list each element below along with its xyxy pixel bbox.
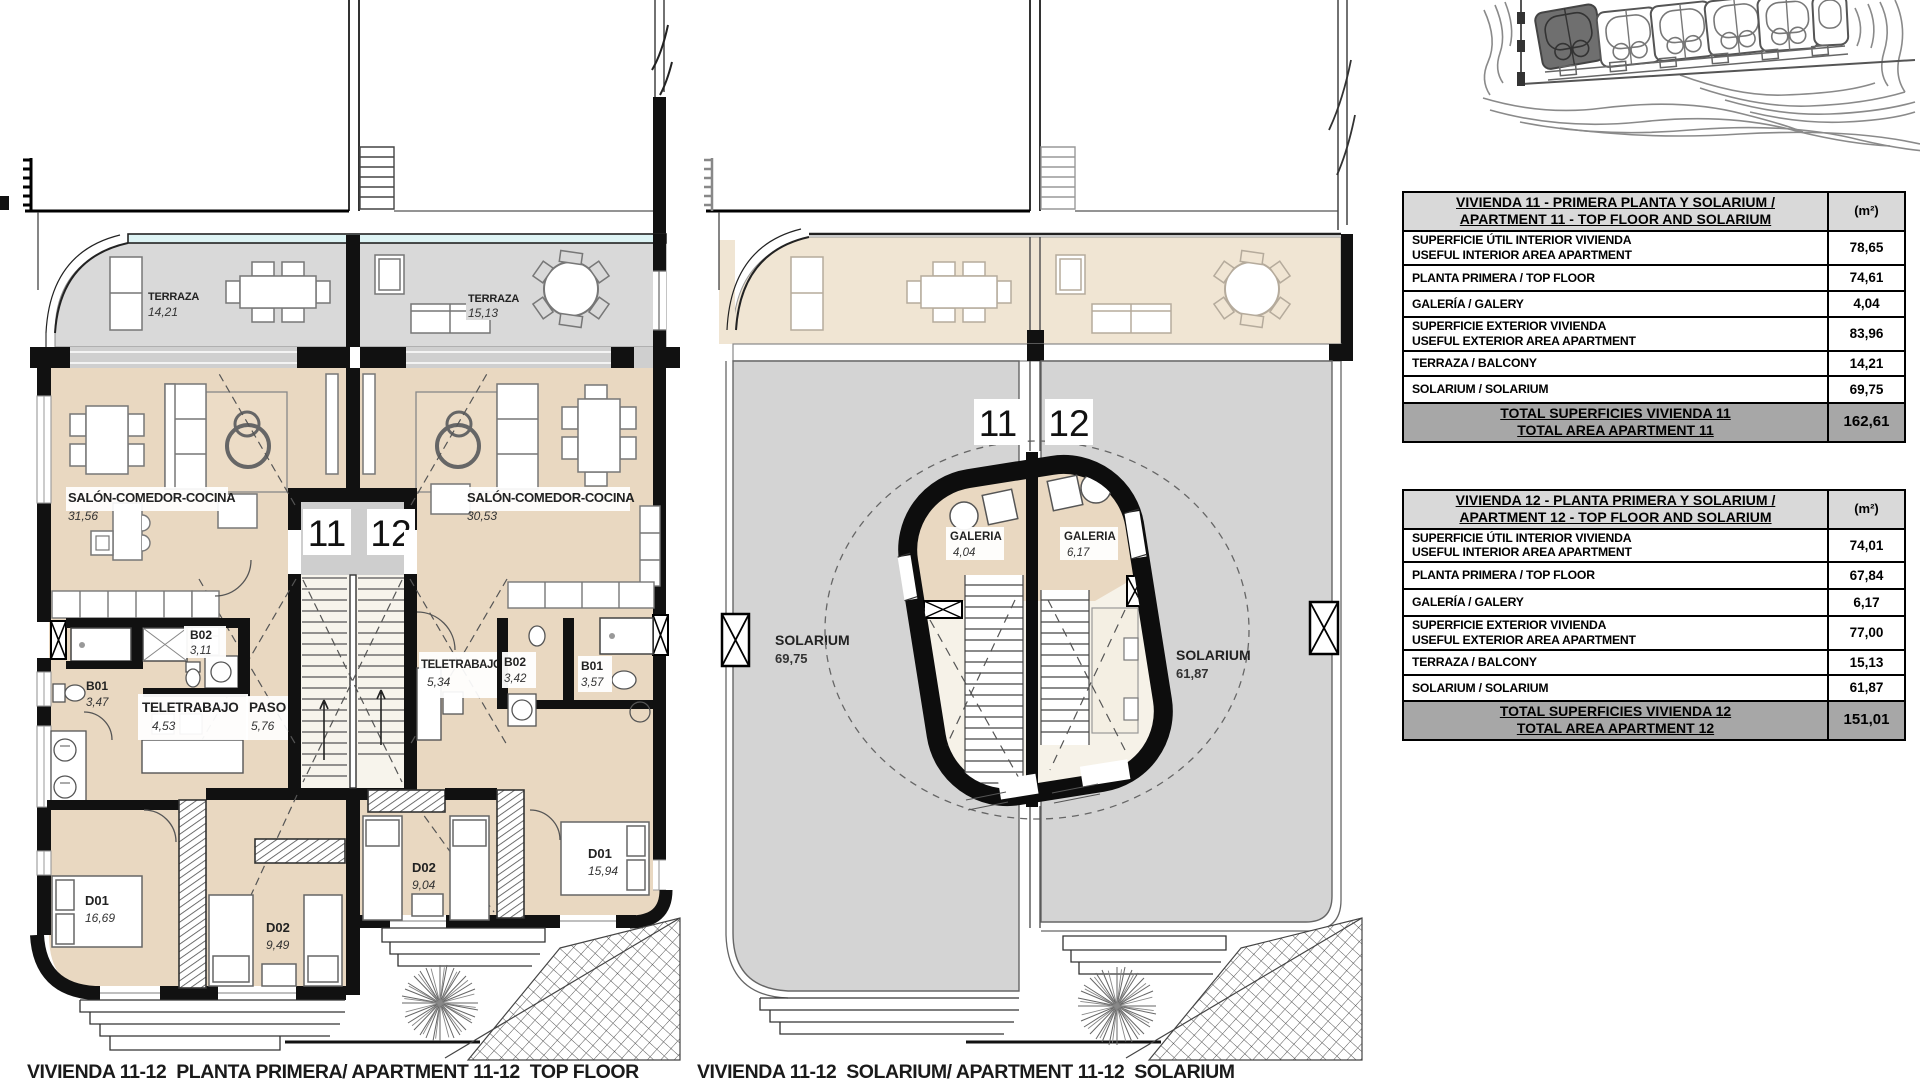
svg-text:9,04: 9,04 <box>412 878 436 892</box>
svg-text:B01: B01 <box>581 659 603 673</box>
svg-text:5,34: 5,34 <box>427 675 451 689</box>
svg-text:6,17: 6,17 <box>1067 547 1090 559</box>
svg-text:3,11: 3,11 <box>190 645 212 657</box>
svg-text:B02: B02 <box>190 628 212 642</box>
svg-text:TERRAZA: TERRAZA <box>148 291 199 303</box>
svg-text:TELETRABAJO: TELETRABAJO <box>421 659 502 671</box>
svg-text:GALERIA: GALERIA <box>1064 531 1116 543</box>
svg-text:B02: B02 <box>504 655 526 669</box>
svg-text:61,87: 61,87 <box>1176 666 1209 681</box>
svg-text:D02: D02 <box>266 920 290 935</box>
svg-text:31,56: 31,56 <box>68 509 98 523</box>
svg-text:15,13: 15,13 <box>468 306 498 320</box>
svg-text:3,42: 3,42 <box>504 673 527 685</box>
svg-text:PASO: PASO <box>249 700 286 715</box>
svg-text:GALERIA: GALERIA <box>950 531 1002 543</box>
svg-text:9,49: 9,49 <box>266 938 290 952</box>
svg-text:D01: D01 <box>588 846 612 861</box>
svg-text:SOLARIUM: SOLARIUM <box>775 632 850 648</box>
svg-text:3,57: 3,57 <box>581 677 604 689</box>
svg-text:30,53: 30,53 <box>467 509 497 523</box>
svg-text:11: 11 <box>308 513 346 554</box>
svg-text:12: 12 <box>1048 403 1089 444</box>
svg-text:69,75: 69,75 <box>775 651 808 666</box>
svg-text:D01: D01 <box>85 893 109 908</box>
svg-text:B01: B01 <box>86 679 108 693</box>
svg-text:SALÓN-COMEDOR-COCINA: SALÓN-COMEDOR-COCINA <box>68 490 236 505</box>
svg-text:5,76: 5,76 <box>251 719 275 733</box>
svg-text:4,04: 4,04 <box>953 547 975 559</box>
svg-text:11: 11 <box>979 403 1017 444</box>
svg-text:D02: D02 <box>412 860 436 875</box>
svg-text:SALÓN-COMEDOR-COCINA: SALÓN-COMEDOR-COCINA <box>467 490 635 505</box>
svg-text:3,47: 3,47 <box>86 697 109 709</box>
svg-text:15,94: 15,94 <box>588 864 618 878</box>
svg-text:TERRAZA: TERRAZA <box>468 293 519 305</box>
svg-text:4,53: 4,53 <box>152 719 176 733</box>
svg-text:SOLARIUM: SOLARIUM <box>1176 647 1251 663</box>
svg-text:TELETRABAJO: TELETRABAJO <box>142 700 238 715</box>
svg-text:14,21: 14,21 <box>148 305 178 319</box>
svg-text:16,69: 16,69 <box>85 911 115 925</box>
